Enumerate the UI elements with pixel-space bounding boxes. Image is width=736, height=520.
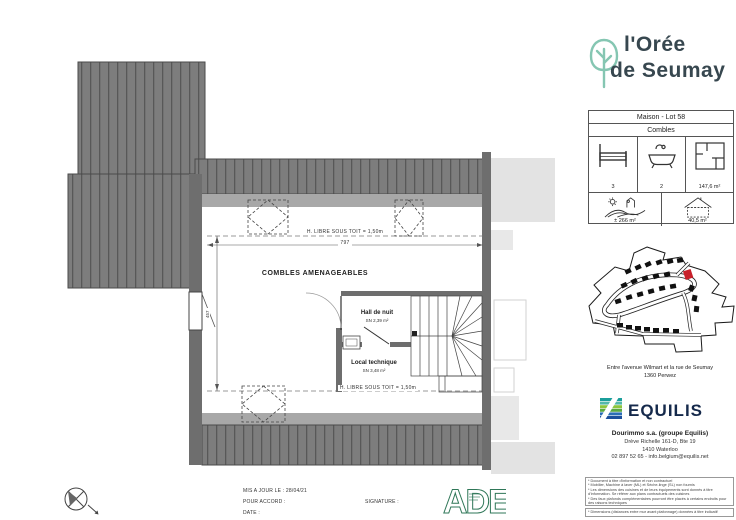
disclaimer-box-2: * Dimensions (distances entre mur avant … [585,508,734,517]
clearance-label-top: H. LIBRE SOUS TOIT = 1,50m [207,230,483,236]
room-local-name: Local technique [334,360,414,366]
approval-label: POUR ACCORD : [243,499,286,505]
disclaimer-line: * Les dimensions des cuisines et de leur… [588,488,731,497]
neighbour-ghost-shapes [491,158,555,474]
floor-plan-sheet: { "header": { "brand_line1": "l'Orée", "… [0,0,736,520]
disclaimer-box-1: * Document à titre d'information et non … [585,477,734,506]
project-name-line1: l'Orée [624,33,686,57]
living-area-cell: 147,6 m² [685,137,733,192]
bathrooms-cell: 2 [637,137,685,192]
party-wall [482,152,491,470]
living-area-value: 147,6 m² [699,184,721,190]
floorplan-icon [694,141,726,171]
adjacent-roof-mass [68,62,205,288]
bath-icon [646,141,678,169]
room-hall-name: Hall de nuit [337,310,417,316]
house-volume-icon [680,197,716,218]
lot-info-box: Maison - Lot 58 Combles 3 2 [588,110,734,224]
bedrooms-cell: 3 [589,137,637,192]
developer-city: 1410 Waterloo [585,447,735,454]
location-line2: 1360 Perwez [585,373,735,380]
clearance-label-bottom: H. LIBRE SOUS TOIT = 1,50m [240,386,516,392]
equilis-wordmark: EQUILIS [628,401,703,421]
updated-date-label: MIS A JOUR LE : 28/04/21 [243,488,307,494]
site-map [585,243,735,363]
roof-window-left [189,292,215,330]
room-hall-area: SN 2,39 m² [337,318,417,323]
bed-icon [596,141,630,169]
disclaimer-line: * Dimensions (distances entre mur avant … [588,510,731,514]
depth-dimension: 457 [206,308,211,320]
garden-area-value: ± 266 m² [614,218,636,224]
disclaimer-line: * Des faux plafonds complémentaires pour… [588,497,731,506]
lot-level: Combles [589,124,733,137]
footprint-area-cell: 40,5 m² [661,193,733,226]
garden-area-cell: ± 266 m² [589,193,661,226]
svg-text:ADE: ADE [443,483,506,520]
ade-architect-logo: ADE [442,482,506,520]
zone-label: COMBLES AMENAGEABLES [240,270,390,277]
project-name-line2: de Seumay [610,59,725,83]
equilis-stripes-icon [599,397,623,420]
signature-label: SIGNATURE : [365,499,399,505]
room-local-area: SN 3,48 m² [334,368,414,373]
north-compass-icon [58,484,104,518]
footprint-area-value: 40,5 m² [688,218,707,224]
width-dimension: 797 [207,241,483,247]
developer-company: Dourimmo s.a. (groupe Equilis) [585,430,735,437]
developer-contact: 02 897 52 65 - info.belgium@equilis.net [585,454,735,461]
lot-title: Maison - Lot 58 [589,111,733,124]
staircase [411,296,482,392]
developer-street: Drève Richelle 161-D, Bte 19 [585,439,735,446]
boiler-unit [343,336,360,349]
attic-floor-plan-drawing [0,0,585,520]
garden-icon [603,197,647,218]
date-label: DATE : [243,510,260,516]
bathrooms-count: 2 [660,184,663,190]
location-line1: Entre l'avenue Wilmart et la rue de Seum… [585,365,735,372]
bedrooms-count: 3 [611,184,614,190]
